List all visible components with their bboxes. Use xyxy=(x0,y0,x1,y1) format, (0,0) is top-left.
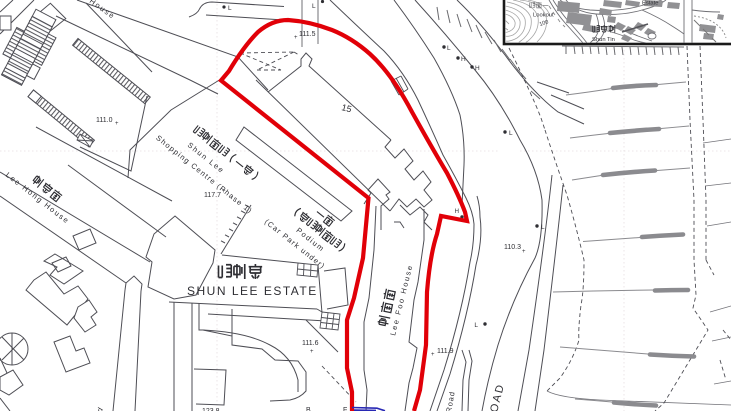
svg-text:+: + xyxy=(294,35,298,41)
svg-text:B: B xyxy=(306,407,311,411)
svg-text:Lookout: Lookout xyxy=(533,13,554,19)
svg-text:H: H xyxy=(475,65,480,72)
svg-text:Estate: Estate xyxy=(642,1,658,7)
svg-text:L: L xyxy=(228,5,232,12)
svg-text:110.3: 110.3 xyxy=(504,244,521,251)
svg-text:H: H xyxy=(461,56,466,63)
svg-text:L: L xyxy=(474,322,478,329)
svg-text:111.6: 111.6 xyxy=(302,340,319,347)
svg-text:L: L xyxy=(541,224,545,231)
svg-text:F: F xyxy=(343,407,347,411)
svg-text:+: + xyxy=(115,121,119,127)
svg-text:111.9: 111.9 xyxy=(437,348,454,355)
svg-text:+: + xyxy=(522,249,526,255)
svg-text:L: L xyxy=(509,130,513,137)
svg-text:111.5: 111.5 xyxy=(299,31,316,38)
svg-text:SHUN LEE ESTATE: SHUN LEE ESTATE xyxy=(187,284,318,298)
svg-text:117.7: 117.7 xyxy=(204,192,221,199)
svg-text:+: + xyxy=(310,349,314,355)
svg-text:Shun Tin: Shun Tin xyxy=(592,37,615,43)
svg-text:+: + xyxy=(431,352,435,358)
svg-text:H: H xyxy=(455,209,459,215)
svg-text:L: L xyxy=(447,45,451,52)
svg-text:L: L xyxy=(312,3,316,10)
svg-text:111.0: 111.0 xyxy=(96,117,113,124)
